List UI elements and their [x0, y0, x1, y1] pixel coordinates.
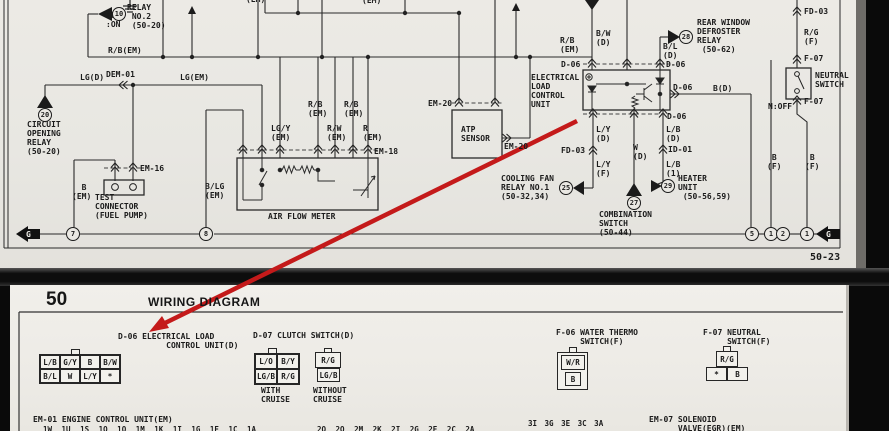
pin-cell: G/Y	[60, 355, 80, 369]
heater-unit-circle: 29	[661, 179, 675, 193]
em01-connector-title: EM-01 ENGINE CONTROL UNIT(EM)	[33, 415, 173, 424]
neutral-switch-label: NEUTRAL SWITCH	[815, 71, 849, 89]
em01-pin-row-3: 3I 3G 3E 3C 3A	[528, 419, 603, 428]
d06-pin-grid: L/B G/Y B B/W B/L W L/Y *	[39, 354, 121, 384]
connector-dem01: DEM-01	[106, 70, 135, 79]
pin-cell: B/Y	[277, 354, 299, 369]
wire-ly-f: L/Y (F)	[596, 160, 610, 178]
scanned-wiring-diagram-page: G G TURN :ON RELAY NO.2 (50-20) R/B(EM) …	[0, 0, 889, 431]
section-title: WIRING DIAGRAM	[148, 295, 260, 309]
connector-d06-bottom: D-06	[667, 112, 686, 121]
ground-circle-2: 2	[776, 227, 790, 241]
elcu-label: ELECTRICAL LOAD CONTROL UNIT	[531, 73, 579, 109]
with-cruise-caption: WITH CRUISE	[261, 386, 290, 404]
pin-cell: *	[706, 367, 727, 381]
ground-circle-5: 5	[745, 227, 759, 241]
connector-f07-a: F-07	[804, 54, 823, 63]
f06-connector-title: F-06 WATER THERMO SWITCH(F)	[556, 328, 638, 346]
n-off-label: N:OFF	[768, 102, 792, 111]
wire-b-d: B(D)	[713, 84, 732, 93]
circuit-opening-relay-label: CIRCUIT OPENING RELAY (50-20)	[27, 120, 61, 156]
section-number: 50	[46, 289, 67, 311]
wire-rb-em-bus: R/B(EM)	[108, 46, 142, 55]
f07-connector-title: F-07 NEUTRAL SWITCH(F)	[703, 328, 770, 346]
pin-cell: LG/B	[317, 368, 340, 382]
circuit-opening-relay-circle: 20	[38, 108, 52, 122]
wire-rg-f: R/G (F)	[804, 28, 818, 46]
rear-defroster-relay-label: REAR WINDOW DEFROSTER RELAY (50-62)	[697, 18, 750, 54]
wire-rw-em: R/W (EM)	[327, 124, 346, 142]
ground-circle-7: 7	[66, 227, 80, 241]
relay-no2-circle: 10	[112, 7, 126, 21]
scan-edge-light	[846, 285, 849, 431]
connector-em18: EM-18	[374, 147, 398, 156]
wire-rb-em-1: R/B (EM)	[308, 100, 327, 118]
wire-lg-d: LG(D)	[80, 73, 104, 82]
wire-bl-d: B/L (D)	[663, 42, 677, 60]
cooling-fan-relay-circle: 25	[559, 181, 573, 195]
ground-circle-8: 8	[199, 227, 213, 241]
cooling-fan-relay-label: COOLING FAN RELAY NO.1 (50-32,34)	[501, 174, 554, 201]
pin-cell: LG/B	[255, 369, 277, 384]
wire-ly-d: L/Y (D)	[596, 125, 610, 143]
em01-pin-row-1: 1W 1U 1S 1Q 1O 1M 1K 1I 1G 1E 1C 1A	[43, 425, 256, 431]
pin-cell: R/G	[716, 351, 738, 367]
ground-circle-1b: 1	[800, 227, 814, 241]
connector-em20-a: EM-20	[428, 99, 452, 108]
pin-cell: B	[80, 355, 100, 369]
d07-with-cruise-grid: L/O B/Y LG/B R/G	[254, 353, 300, 385]
scan-edge-gray	[856, 0, 866, 272]
pin-cell: L/Y	[80, 369, 100, 383]
air-flow-meter-label: AIR FLOW METER	[268, 212, 335, 221]
page-gap-band	[0, 268, 889, 286]
wire-lg-em: LG(EM)	[180, 73, 209, 82]
pin-cell: R/G	[277, 369, 299, 384]
em01-pin-row-2: 2Q 2O 2M 2K 2I 2G 2E 2C 2A	[317, 425, 474, 431]
wire-bf-2: B (F)	[805, 153, 819, 171]
connector-fd03-mid: FD-03	[561, 146, 585, 155]
wire-lgy-em: LG/Y (EM)	[271, 124, 290, 142]
pin-cell: *	[100, 369, 120, 383]
pin-cell: W/R	[561, 355, 585, 370]
connector-em16: EM-16	[140, 164, 164, 173]
wire-blg-em: B/LG (EM)	[205, 182, 224, 200]
d07-connector-title: D-07 CLUTCH SWITCH(D)	[253, 331, 354, 340]
pin-cell: L/O	[255, 354, 277, 369]
wire-bw-d: B/W (D)	[596, 29, 610, 47]
wire-em-partial-2: (EM)	[362, 0, 381, 5]
without-cruise-caption: WITHOUT CRUISE	[313, 386, 347, 404]
wire-lb-d: L/B (D)	[666, 125, 680, 143]
atp-sensor-label: ATP SENSOR	[461, 125, 490, 143]
pin-cell: L/B	[40, 355, 60, 369]
page-number: 50-23	[810, 253, 840, 262]
wire-rb-em-right: R/B (EM)	[560, 36, 579, 54]
connector-d06-tl: D-06	[561, 60, 580, 69]
pin-cell: B	[565, 372, 581, 386]
wire-w-d: W (D)	[633, 143, 647, 161]
rear-defroster-relay-circle: 28	[679, 30, 693, 44]
pin-cell: B/L	[40, 369, 60, 383]
heater-unit-label: HEATER UNIT (50-56,59)	[678, 174, 731, 201]
wire-em-partial-1: (EM)	[246, 0, 265, 4]
pin-cell: B	[727, 367, 748, 381]
connector-id01: ID-01	[668, 145, 692, 154]
pin-cell: R/G	[315, 352, 341, 368]
wire-r-em: R (EM)	[363, 124, 382, 142]
combination-switch-circle: 27	[627, 196, 641, 210]
wire-b-em: B (EM)	[72, 183, 91, 201]
wire-bf-1: B (F)	[767, 153, 781, 171]
connector-f07-b: F-07	[804, 97, 823, 106]
connector-d06-tr: D-06	[666, 60, 685, 69]
wire-rb-em-2: R/B (EM)	[344, 100, 363, 118]
relay-no2-label: RELAY NO.2 (50-20)	[127, 3, 166, 30]
d06-connector-title: D-06 ELECTRICAL LOAD CONTROL UNIT(D)	[118, 332, 238, 350]
pin-cell: W	[60, 369, 80, 383]
pin-cell: B/W	[100, 355, 120, 369]
connector-em20-b: EM-20	[504, 142, 528, 151]
em07-connector-title: EM-07 SOLENOID VALVE(EGR)(EM)	[649, 415, 745, 431]
test-connector-label: TEST CONNECTOR (FUEL PUMP)	[95, 193, 148, 220]
connector-fd03-top: FD-03	[804, 7, 828, 16]
connector-d06-right: D-06	[673, 83, 692, 92]
combination-switch-label: COMBINATION SWITCH (50-44)	[599, 210, 652, 237]
